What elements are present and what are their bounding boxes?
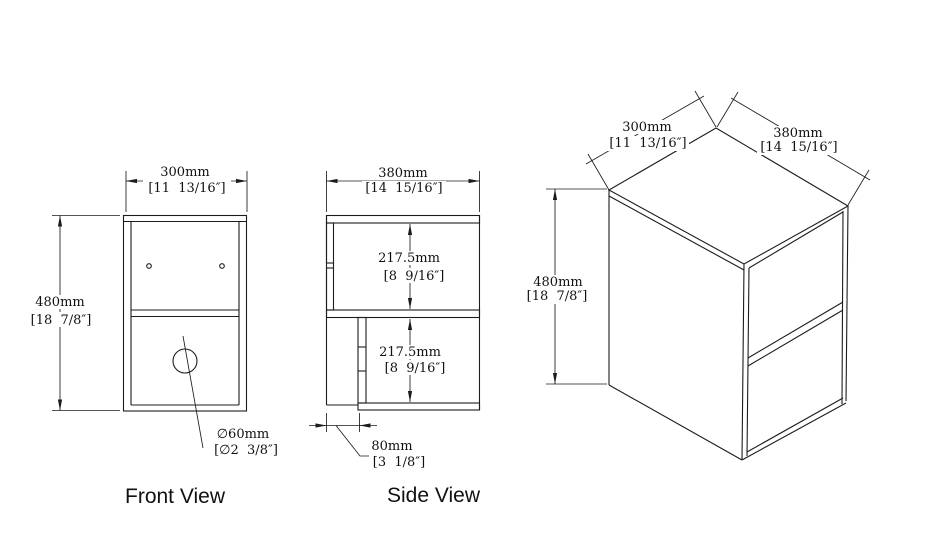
- iso-back-right-edge-inner: [842, 211, 843, 404]
- dimension-text-masks: [27, 120, 840, 375]
- side-width-dim-mm: 380mm: [378, 166, 427, 181]
- dimension-texts: 300mm [11 13/16″] 480mm [18 7/8″] ∅60mm …: [31, 120, 838, 470]
- iso-front-edge-inner: [747, 268, 749, 456]
- iso-width-ext-left: [717, 92, 738, 127]
- side-lower-cell-dim-inch: [8 9/16″]: [385, 361, 446, 376]
- side-view-geometry: [327, 215, 480, 410]
- side-upper-cell-dim-inch: [8 9/16″]: [384, 269, 445, 284]
- iso-bottom-shelf-top-edge: [747, 398, 843, 452]
- technical-drawing-canvas: 300mm [11 13/16″] 480mm [18 7/8″] ∅60mm …: [0, 0, 946, 546]
- side-top-panel-section: [327, 216, 480, 224]
- side-recess-dim-mm: 80mm: [371, 439, 412, 454]
- iso-height-dim-mm: 480mm: [533, 275, 582, 290]
- front-width-dim-mm: 300mm: [160, 165, 209, 180]
- iso-depth-ext-left: [588, 154, 609, 190]
- drawing-page: 300mm [11 13/16″] 480mm [18 7/8″] ∅60mm …: [0, 0, 946, 546]
- isometric-view-geometry: [609, 128, 848, 460]
- iso-front-edge-outer: [742, 264, 744, 460]
- iso-back-right-edge-outer: [846, 206, 848, 401]
- side-recessed-panel-a: [358, 318, 366, 348]
- side-back-panel-upper-a: [327, 223, 334, 263]
- side-view-label: Side View: [387, 484, 481, 507]
- iso-top-thickness-right: [749, 212, 843, 268]
- side-width-dim-inch: [14 15/16″]: [365, 181, 442, 196]
- iso-depth-ext-right: [695, 91, 716, 127]
- iso-width-ext-right: [848, 170, 869, 205]
- side-bottom-panel-section: [358, 403, 480, 410]
- iso-mid-shelf-bottom-edge: [748, 310, 843, 366]
- side-upper-cell-dim-mm: 217.5mm: [378, 251, 440, 266]
- iso-width-dim-inch: [14 15/16″]: [760, 140, 837, 155]
- side-recessed-panel-b: [358, 371, 366, 403]
- view-labels: Front View Side View: [125, 484, 481, 508]
- front-view-label: Front View: [125, 485, 226, 508]
- side-recess-leader-line: [336, 426, 369, 457]
- iso-top-thickness-left: [609, 196, 744, 270]
- front-outline: [124, 216, 247, 412]
- iso-width-dim-mm: 380mm: [773, 126, 822, 141]
- side-view-dimensions: [309, 171, 480, 456]
- iso-mid-shelf-top-edge: [748, 302, 843, 358]
- side-lower-cell-dim-mm: 217.5mm: [379, 345, 441, 360]
- front-height-dim-inch: [18 7/8″]: [31, 313, 92, 328]
- front-hole-dim-inch: [∅2 3/8″]: [214, 443, 278, 458]
- front-view-geometry: [124, 216, 247, 412]
- side-recess-dim-inch: [3 1/8″]: [373, 455, 425, 470]
- iso-depth-dim-mm: 300mm: [622, 120, 671, 135]
- side-mid-shelf-section: [327, 310, 480, 318]
- iso-height-dim-inch: [18 7/8″]: [527, 289, 588, 304]
- iso-bottom-edge: [742, 403, 846, 460]
- front-height-dim-mm: 480mm: [35, 295, 84, 310]
- front-screw-hole-right: [220, 264, 225, 269]
- side-back-panel-upper-b: [327, 268, 334, 310]
- front-hole-dim-mm: ∅60mm: [217, 427, 270, 442]
- iso-depth-dim-inch: [11 13/16″]: [609, 136, 686, 151]
- front-width-dim-inch: [11 13/16″]: [148, 181, 225, 196]
- front-cable-hole: [173, 349, 197, 373]
- iso-side-panel-bottom-edge: [609, 385, 742, 460]
- front-screw-hole-left: [147, 264, 152, 269]
